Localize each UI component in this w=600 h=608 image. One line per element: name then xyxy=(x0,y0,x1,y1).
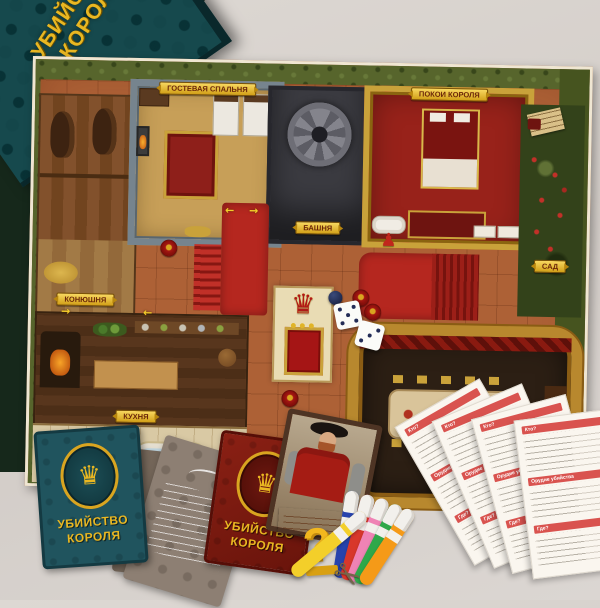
sheet-rows xyxy=(523,426,600,472)
bed xyxy=(213,93,240,135)
room-kitchen: Кухня xyxy=(33,311,249,431)
arrow-left-icon: ← xyxy=(143,307,152,318)
canopy-bed xyxy=(421,108,481,189)
room-label-garden: Сад xyxy=(534,260,567,274)
grass-border-top xyxy=(36,59,590,90)
arrow-right-icon: → xyxy=(249,205,258,216)
room-king-chambers: Покои Короля xyxy=(361,85,534,250)
stall-divider xyxy=(40,173,136,179)
room-label-tower: Башня xyxy=(295,221,340,235)
barrel xyxy=(218,349,236,367)
spiral-staircase xyxy=(287,102,352,167)
crown-emblem-icon: ♛ xyxy=(58,441,120,511)
wax-seal-token xyxy=(160,239,177,256)
blue-deck-title: Убийство Короля xyxy=(42,511,144,548)
blue-card-deck: ♛ Убийство Короля xyxy=(33,424,148,569)
wax-seal-token xyxy=(281,390,298,407)
red-pawn-piece: ♟ xyxy=(380,232,396,250)
crown-icon: ♛ xyxy=(291,290,316,320)
wax-seal-square xyxy=(528,119,541,130)
horse-figure xyxy=(92,108,117,154)
room-label-kitchen: Кухня xyxy=(115,410,156,424)
room-label-king-chambers: Покои Короля xyxy=(411,87,488,101)
bench xyxy=(474,225,496,237)
room-label-stable: Конюшня xyxy=(56,292,114,306)
red-rug xyxy=(163,131,218,200)
arrow-left-icon: ← xyxy=(225,205,234,216)
red-carpet-corridor xyxy=(220,203,269,316)
red-drape xyxy=(359,334,571,352)
hearth xyxy=(40,331,81,388)
bed xyxy=(243,94,270,136)
throne xyxy=(284,327,324,376)
red-stairs xyxy=(193,244,221,311)
red-dais-stairs xyxy=(431,254,479,321)
throne-tile: ♛ xyxy=(272,286,334,383)
room-stable: Конюшня xyxy=(35,93,139,317)
kitchen-table xyxy=(94,360,179,390)
chairs-row xyxy=(393,375,505,385)
marker-label-band xyxy=(386,529,403,544)
bench xyxy=(498,226,520,238)
vegetables xyxy=(93,322,127,337)
fireplace xyxy=(136,126,150,156)
room-label-guest-bedroom: Гостевая спальня xyxy=(159,81,256,96)
horse-figure xyxy=(50,111,75,157)
room-garden: Сад xyxy=(517,104,585,317)
jar-shelf xyxy=(135,321,239,335)
gold-mat xyxy=(185,226,211,237)
king-doublet xyxy=(290,446,352,503)
room-tower: Башня xyxy=(265,86,372,246)
arrow-right-icon: → xyxy=(61,306,70,317)
